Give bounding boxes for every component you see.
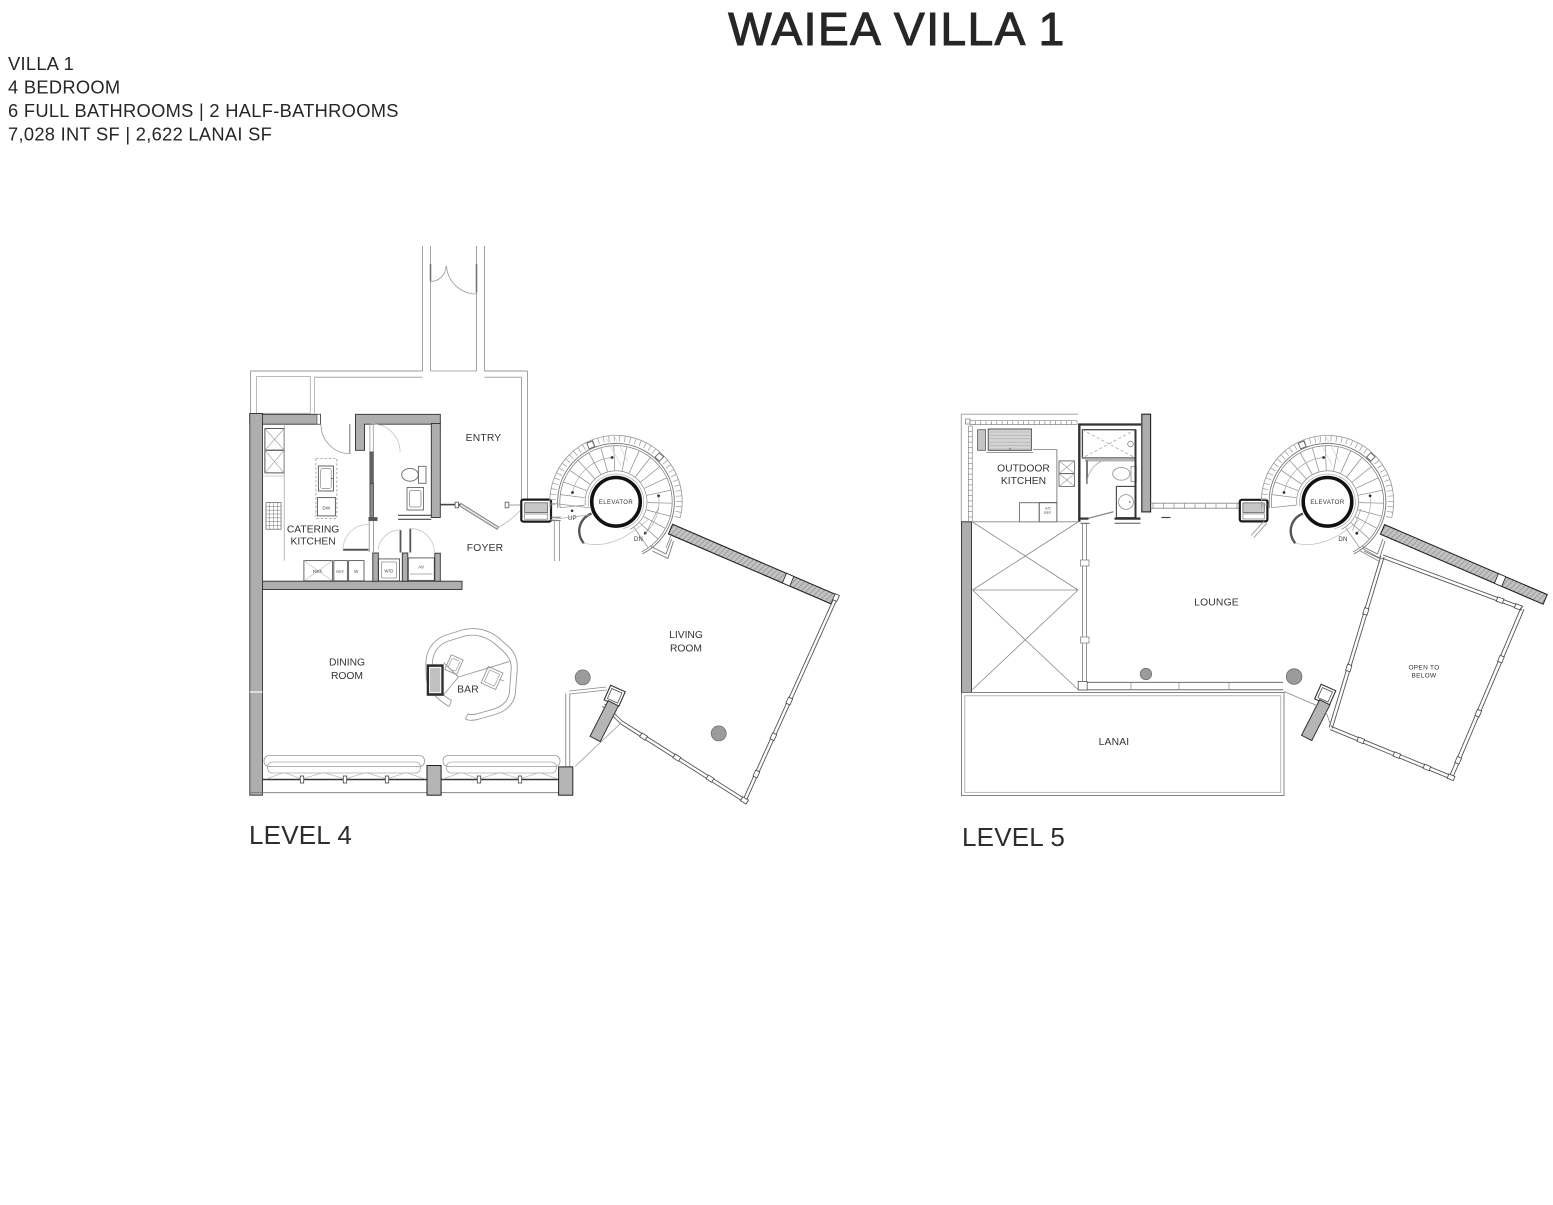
svg-text:ROOM: ROOM xyxy=(670,643,702,654)
svg-text:W: W xyxy=(354,569,359,574)
svg-text:DN: DN xyxy=(634,537,643,543)
svg-text:ENTRY: ENTRY xyxy=(466,433,502,444)
svg-text:U/C: U/C xyxy=(1045,507,1052,511)
svg-text:LANAI: LANAI xyxy=(1099,737,1130,748)
svg-text:BELOW: BELOW xyxy=(1412,673,1438,680)
svg-text:DW: DW xyxy=(323,506,331,511)
svg-text:ROOM: ROOM xyxy=(331,671,363,682)
svg-text:OUTDOOR: OUTDOOR xyxy=(997,464,1050,475)
svg-text:LOUNGE: LOUNGE xyxy=(1194,597,1239,608)
svg-text:7,028 INT SF | 2,622 LANAI SF: 7,028 INT SF | 2,622 LANAI SF xyxy=(8,124,272,145)
svg-text:6 FULL BATHROOMS | 2 HALF-BATH: 6 FULL BATHROOMS | 2 HALF-BATHROOMS xyxy=(8,100,399,121)
svg-text:4 BEDROOM: 4 BEDROOM xyxy=(8,77,120,98)
svg-text:KITCHEN: KITCHEN xyxy=(290,537,335,548)
svg-text:AV: AV xyxy=(418,565,424,570)
svg-text:FOYER: FOYER xyxy=(467,543,503,554)
svg-text:OPEN TO: OPEN TO xyxy=(1408,665,1439,672)
svg-text:LEVEL 4: LEVEL 4 xyxy=(249,820,352,850)
svg-text:LIVING: LIVING xyxy=(669,630,703,641)
svg-text:WAIEA VILLA 1: WAIEA VILLA 1 xyxy=(728,3,1065,55)
svg-text:LEVEL 5: LEVEL 5 xyxy=(962,822,1065,852)
svg-text:REF.: REF. xyxy=(313,569,323,574)
svg-text:CATERING: CATERING xyxy=(287,525,339,536)
svg-text:REF.: REF. xyxy=(336,570,345,574)
svg-text:W/D: W/D xyxy=(384,569,393,574)
svg-text:DN: DN xyxy=(1338,537,1347,543)
svg-text:BAR: BAR xyxy=(457,685,479,696)
svg-text:KITCHEN: KITCHEN xyxy=(1001,476,1046,487)
svg-text:VILLA 1: VILLA 1 xyxy=(8,53,74,74)
svg-text:REF.: REF. xyxy=(1044,511,1052,515)
svg-text:DINING: DINING xyxy=(329,658,365,669)
